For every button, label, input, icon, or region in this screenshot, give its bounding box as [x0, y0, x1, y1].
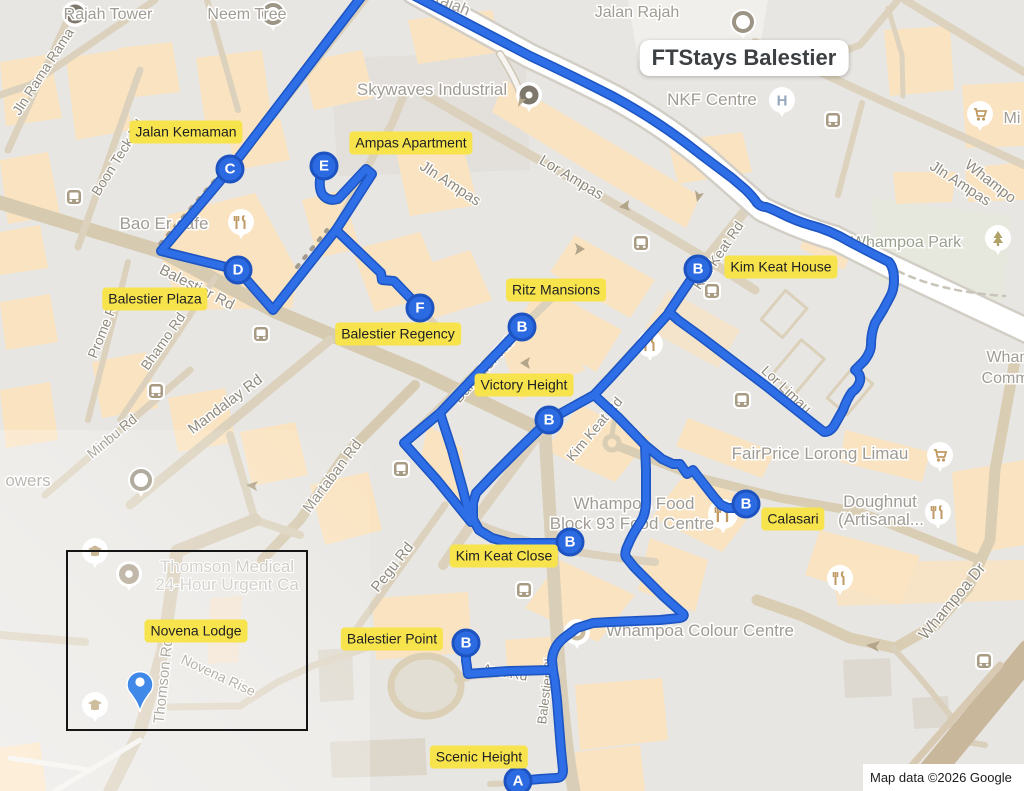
svg-text:H: H: [777, 93, 788, 110]
svg-text:Whamp: Whamp: [986, 349, 1024, 366]
svg-text:FairPrice Lorong Limau: FairPrice Lorong Limau: [732, 444, 909, 463]
svg-text:NKF Centre: NKF Centre: [667, 90, 757, 109]
svg-text:Commun: Commun: [982, 370, 1024, 387]
svg-text:Neem Tree: Neem Tree: [207, 6, 286, 23]
svg-text:Skywaves Industrial: Skywaves Industrial: [357, 80, 507, 99]
svg-text:Mi: Mi: [1004, 110, 1021, 127]
svg-text:Whampoa Food: Whampoa Food: [574, 494, 695, 513]
svg-text:Rajah Tower: Rajah Tower: [64, 6, 153, 23]
svg-text:Jalan Rajah: Jalan Rajah: [595, 4, 680, 21]
svg-text:Doughnut: Doughnut: [843, 492, 917, 511]
svg-text:(Artisanal...: (Artisanal...: [838, 510, 924, 529]
